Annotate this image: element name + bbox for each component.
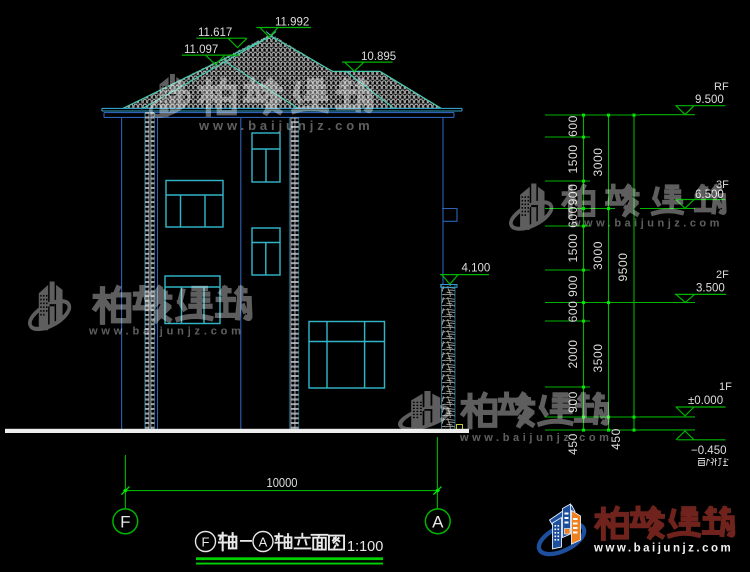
- svg-text:www.baijunjz.com: www.baijunjz.com: [593, 543, 733, 555]
- svg-text:4.100: 4.100: [462, 263, 491, 275]
- svg-text:10.895: 10.895: [361, 51, 396, 63]
- svg-text:11.617: 11.617: [198, 27, 232, 39]
- svg-text:−0.450: −0.450: [691, 445, 727, 457]
- svg-text:www.baijunjz.com: www.baijunjz.com: [198, 118, 374, 133]
- svg-text:10000: 10000: [267, 475, 298, 490]
- svg-text:9500: 9500: [616, 252, 630, 281]
- svg-text:1500: 1500: [566, 233, 580, 262]
- svg-text:RF: RF: [714, 81, 729, 93]
- svg-text:A: A: [432, 513, 444, 532]
- svg-text:2000: 2000: [566, 339, 580, 368]
- svg-text:1500: 1500: [566, 144, 580, 173]
- svg-text:11.992: 11.992: [275, 17, 309, 29]
- svg-text:3500: 3500: [591, 343, 605, 372]
- svg-text:11.097: 11.097: [184, 44, 218, 56]
- svg-text:www.baijunjz.com: www.baijunjz.com: [571, 218, 723, 230]
- svg-text:±0.000: ±0.000: [688, 395, 723, 407]
- svg-text:600: 600: [566, 115, 580, 137]
- svg-text:F: F: [120, 513, 130, 532]
- svg-text:www.baijunjz.com: www.baijunjz.com: [459, 432, 613, 444]
- svg-text:3000: 3000: [591, 147, 605, 176]
- svg-text:F: F: [202, 535, 210, 550]
- svg-text:A: A: [259, 535, 268, 550]
- svg-text:3.500: 3.500: [696, 283, 725, 295]
- svg-text:600: 600: [566, 301, 580, 323]
- svg-text:www.baijunjz.com: www.baijunjz.com: [88, 326, 245, 338]
- svg-text:1F: 1F: [719, 381, 732, 393]
- svg-text:2F: 2F: [716, 269, 729, 281]
- svg-text:1:100: 1:100: [347, 539, 383, 555]
- svg-text:9.500: 9.500: [695, 94, 724, 106]
- svg-text:3000: 3000: [591, 241, 605, 270]
- svg-text:900: 900: [566, 275, 580, 297]
